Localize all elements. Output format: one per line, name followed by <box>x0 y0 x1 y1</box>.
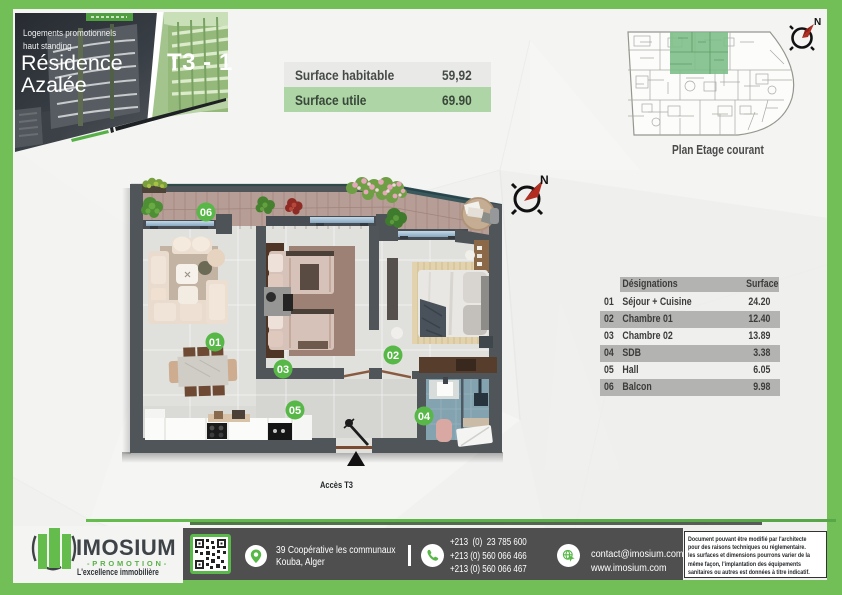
svg-text:N: N <box>540 173 549 187</box>
svg-text:Accès T3: Accès T3 <box>320 480 353 491</box>
svg-text:04: 04 <box>418 411 431 423</box>
svg-text:02: 02 <box>387 350 399 362</box>
svg-text:N: N <box>814 17 821 28</box>
svg-text:01: 01 <box>209 337 221 349</box>
svg-text:06: 06 <box>200 207 212 219</box>
svg-text:03: 03 <box>277 364 289 376</box>
svg-text:05: 05 <box>289 405 301 417</box>
